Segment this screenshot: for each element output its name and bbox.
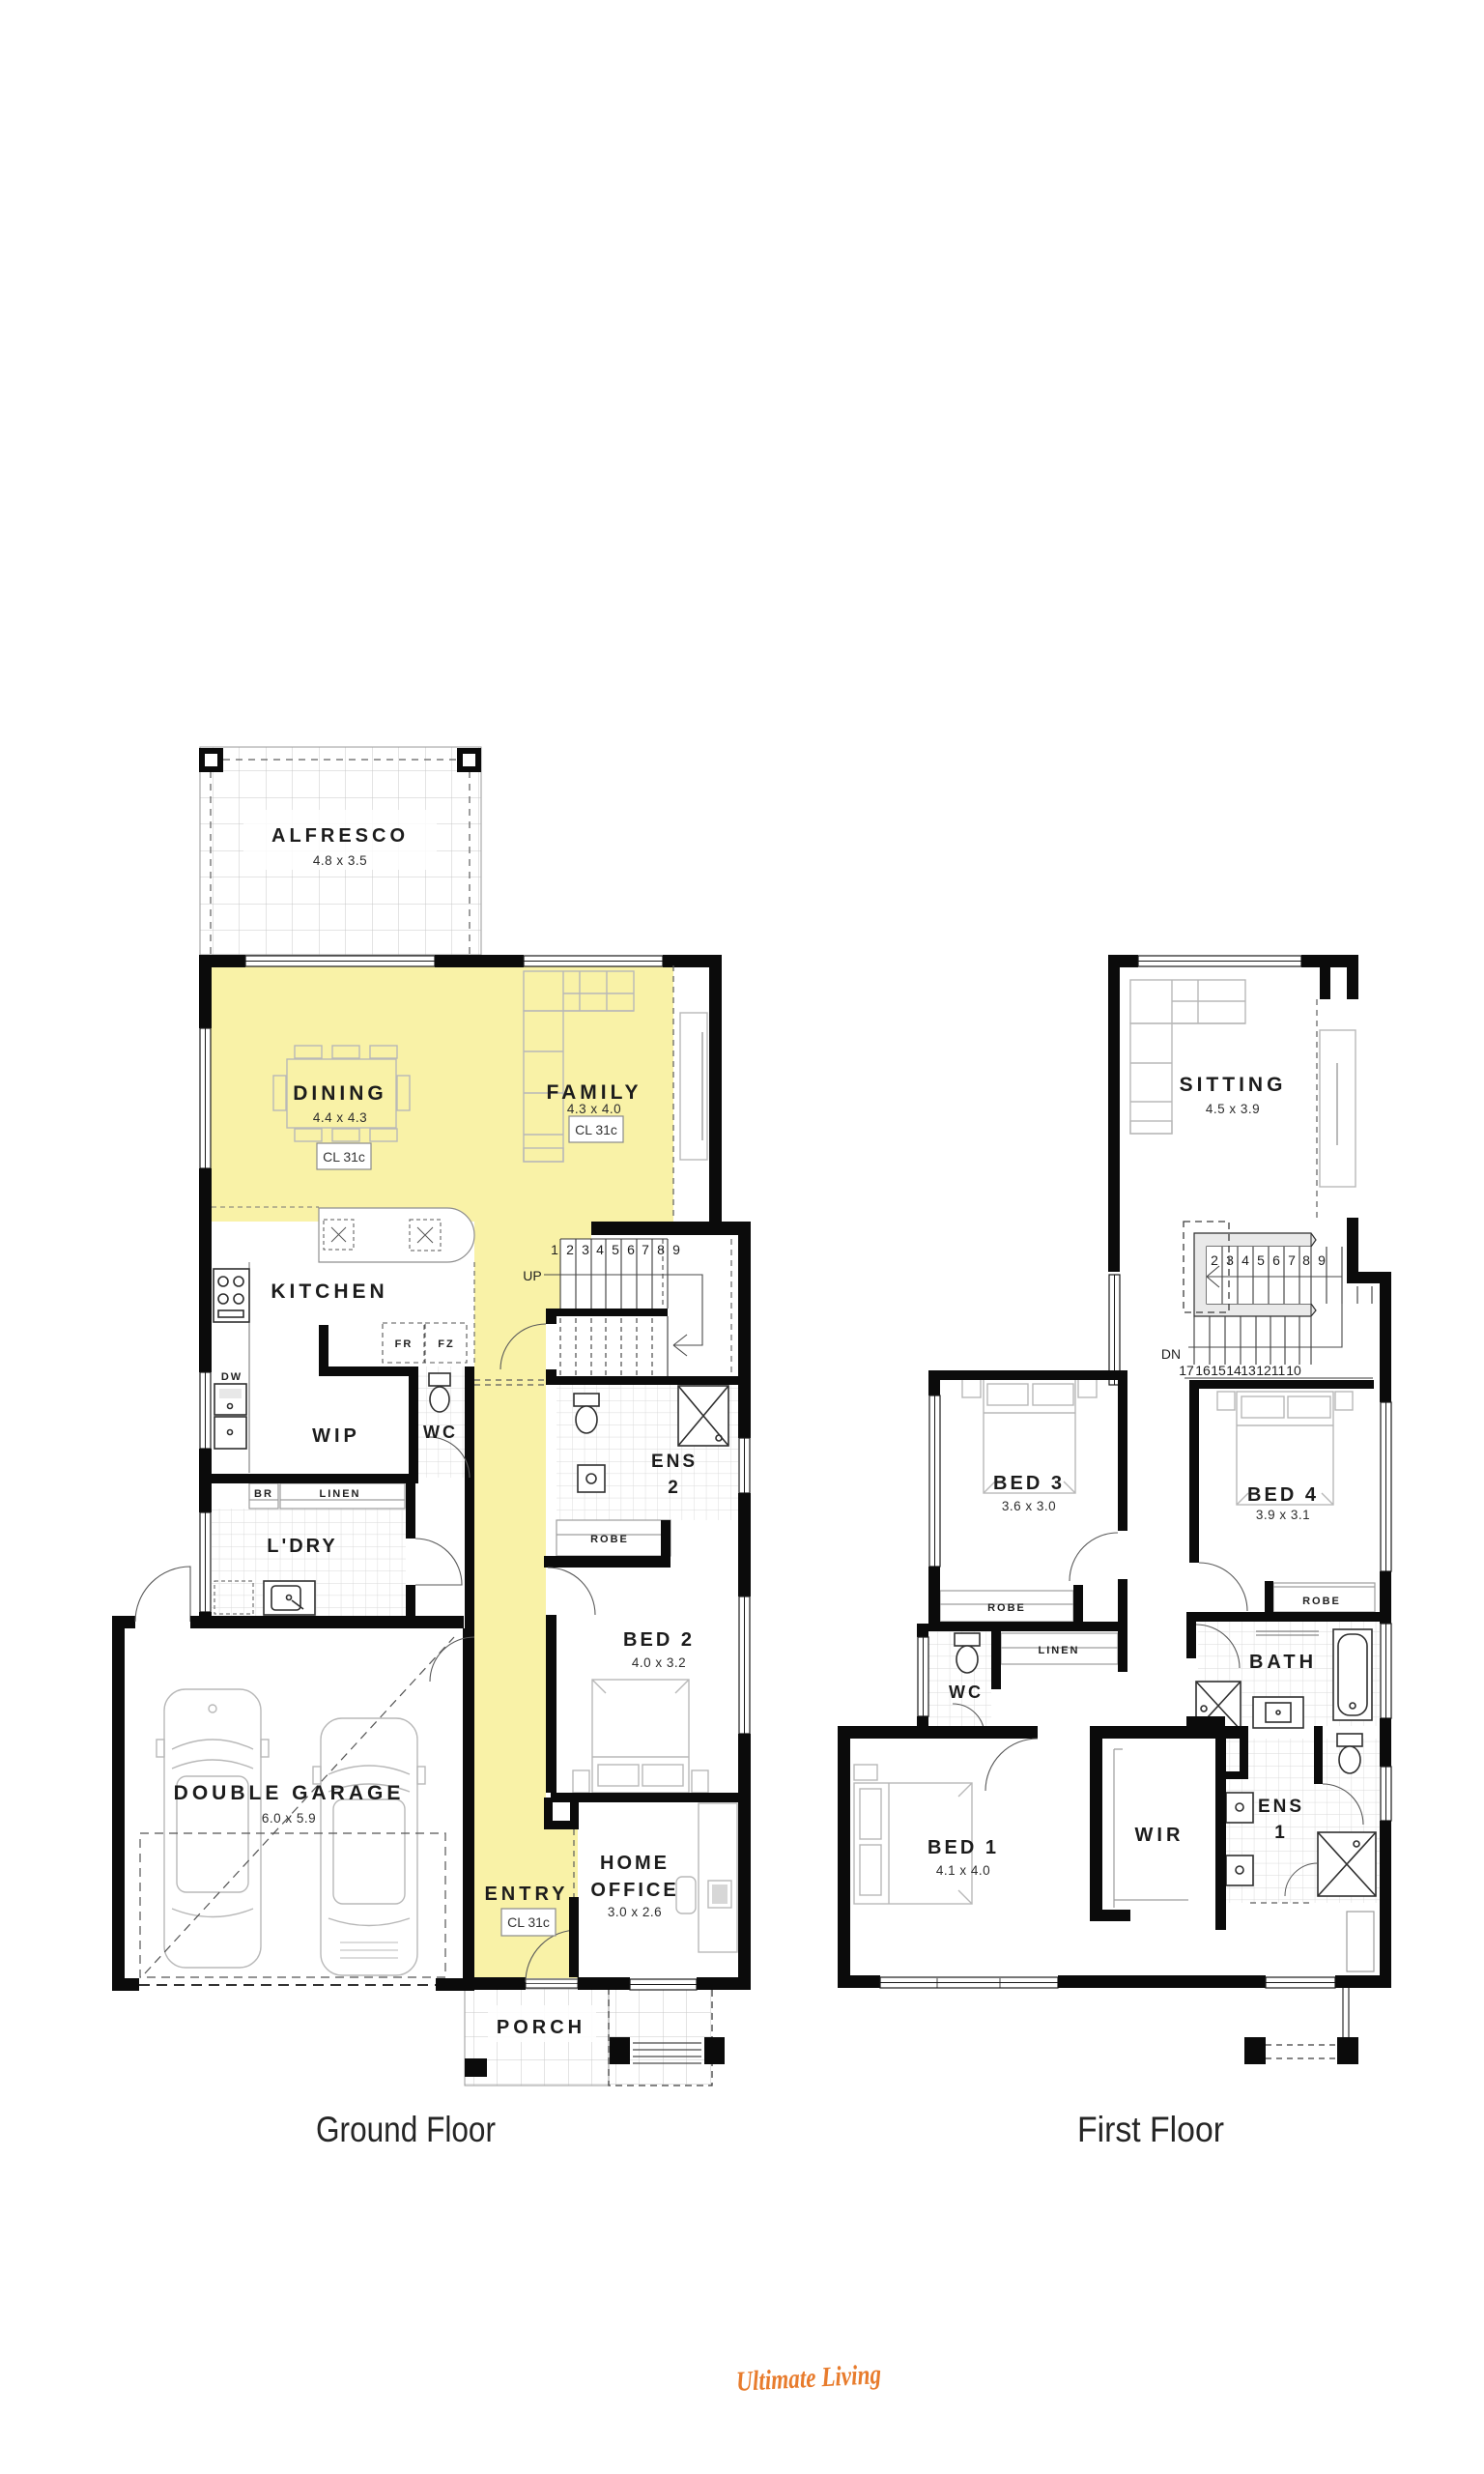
svg-text:FR: FR — [395, 1338, 414, 1350]
svg-text:ROBE: ROBE — [987, 1602, 1026, 1614]
svg-text:CL 31c: CL 31c — [323, 1149, 365, 1165]
svg-text:2: 2 — [668, 1478, 681, 1498]
svg-text:First Floor: First Floor — [1077, 2110, 1224, 2149]
svg-text:9: 9 — [672, 1242, 680, 1257]
svg-text:SITTING: SITTING — [1180, 1074, 1287, 1096]
svg-text:4.5 x 3.9: 4.5 x 3.9 — [1206, 1102, 1260, 1116]
svg-text:5: 5 — [1257, 1252, 1265, 1268]
svg-text:ENTRY: ENTRY — [484, 1884, 568, 1905]
svg-text:6: 6 — [627, 1242, 635, 1257]
svg-text:ROBE: ROBE — [1302, 1596, 1341, 1607]
svg-text:PORCH: PORCH — [497, 2017, 585, 2038]
svg-text:8: 8 — [1302, 1252, 1310, 1268]
svg-text:WIR: WIR — [1135, 1825, 1184, 1846]
svg-text:WC: WC — [949, 1683, 984, 1702]
svg-text:4.1 x 4.0: 4.1 x 4.0 — [936, 1863, 990, 1878]
svg-text:4.4 x 4.3: 4.4 x 4.3 — [313, 1110, 367, 1125]
svg-text:FZ: FZ — [438, 1338, 454, 1350]
svg-text:FAMILY: FAMILY — [546, 1081, 642, 1104]
svg-text:ENS: ENS — [1258, 1797, 1304, 1817]
svg-text:OFFICE: OFFICE — [590, 1880, 678, 1901]
svg-text:ROBE: ROBE — [590, 1534, 629, 1545]
svg-text:BED 4: BED 4 — [1247, 1484, 1319, 1506]
svg-text:DINING: DINING — [293, 1082, 387, 1105]
svg-text:3: 3 — [1226, 1252, 1234, 1268]
svg-text:BED 2: BED 2 — [623, 1629, 695, 1651]
svg-text:3.9 x 3.1: 3.9 x 3.1 — [1256, 1508, 1310, 1522]
svg-text:BR: BR — [254, 1488, 273, 1500]
svg-text:LINEN: LINEN — [320, 1488, 361, 1500]
svg-text:4.3 x 4.0: 4.3 x 4.0 — [567, 1102, 621, 1116]
svg-text:WIP: WIP — [312, 1425, 360, 1447]
svg-text:CL 31c: CL 31c — [575, 1122, 617, 1137]
svg-text:10: 10 — [1286, 1363, 1301, 1378]
svg-text:DW: DW — [221, 1371, 243, 1383]
svg-text:3.6 x 3.0: 3.6 x 3.0 — [1002, 1499, 1056, 1513]
svg-text:LINEN: LINEN — [1039, 1645, 1080, 1656]
svg-text:3.0 x 2.6: 3.0 x 2.6 — [608, 1905, 662, 1919]
svg-text:2: 2 — [566, 1242, 574, 1257]
svg-text:BED 3: BED 3 — [993, 1473, 1065, 1494]
svg-text:WC: WC — [423, 1423, 458, 1442]
svg-text:UP: UP — [523, 1268, 541, 1283]
svg-text:17: 17 — [1179, 1363, 1194, 1378]
svg-text:14: 14 — [1226, 1363, 1241, 1378]
svg-text:BED 1: BED 1 — [927, 1837, 999, 1858]
svg-text:HOME: HOME — [600, 1853, 670, 1874]
svg-text:16: 16 — [1195, 1363, 1211, 1378]
svg-text:4.8 x 3.5: 4.8 x 3.5 — [313, 853, 367, 868]
svg-text:1: 1 — [551, 1242, 558, 1257]
svg-text:6: 6 — [1272, 1252, 1280, 1268]
svg-text:CL 31c: CL 31c — [507, 1914, 550, 1930]
svg-text:ENS: ENS — [651, 1452, 698, 1472]
svg-text:12: 12 — [1256, 1363, 1271, 1378]
svg-text:8: 8 — [657, 1242, 665, 1257]
svg-text:2: 2 — [1211, 1252, 1218, 1268]
svg-text:ALFRESCO: ALFRESCO — [271, 825, 409, 847]
svg-text:L'DRY: L'DRY — [267, 1536, 337, 1557]
svg-text:DN: DN — [1161, 1346, 1181, 1362]
svg-text:7: 7 — [642, 1242, 649, 1257]
svg-text:4: 4 — [596, 1242, 604, 1257]
svg-text:9: 9 — [1318, 1252, 1326, 1268]
svg-text:5: 5 — [612, 1242, 619, 1257]
svg-text:15: 15 — [1211, 1363, 1226, 1378]
svg-text:4: 4 — [1241, 1252, 1249, 1268]
svg-text:11: 11 — [1271, 1363, 1286, 1378]
svg-text:DOUBLE GARAGE: DOUBLE GARAGE — [174, 1782, 405, 1804]
svg-text:1: 1 — [1274, 1823, 1288, 1843]
svg-text:BATH: BATH — [1249, 1652, 1317, 1673]
svg-text:6.0 x 5.9: 6.0 x 5.9 — [262, 1811, 316, 1826]
svg-text:Ground Floor: Ground Floor — [316, 2110, 496, 2149]
svg-text:13: 13 — [1241, 1363, 1256, 1378]
svg-text:7: 7 — [1288, 1252, 1296, 1268]
svg-text:4.0 x 3.2: 4.0 x 3.2 — [632, 1655, 686, 1670]
svg-text:3: 3 — [582, 1242, 589, 1257]
svg-text:KITCHEN: KITCHEN — [271, 1280, 387, 1303]
